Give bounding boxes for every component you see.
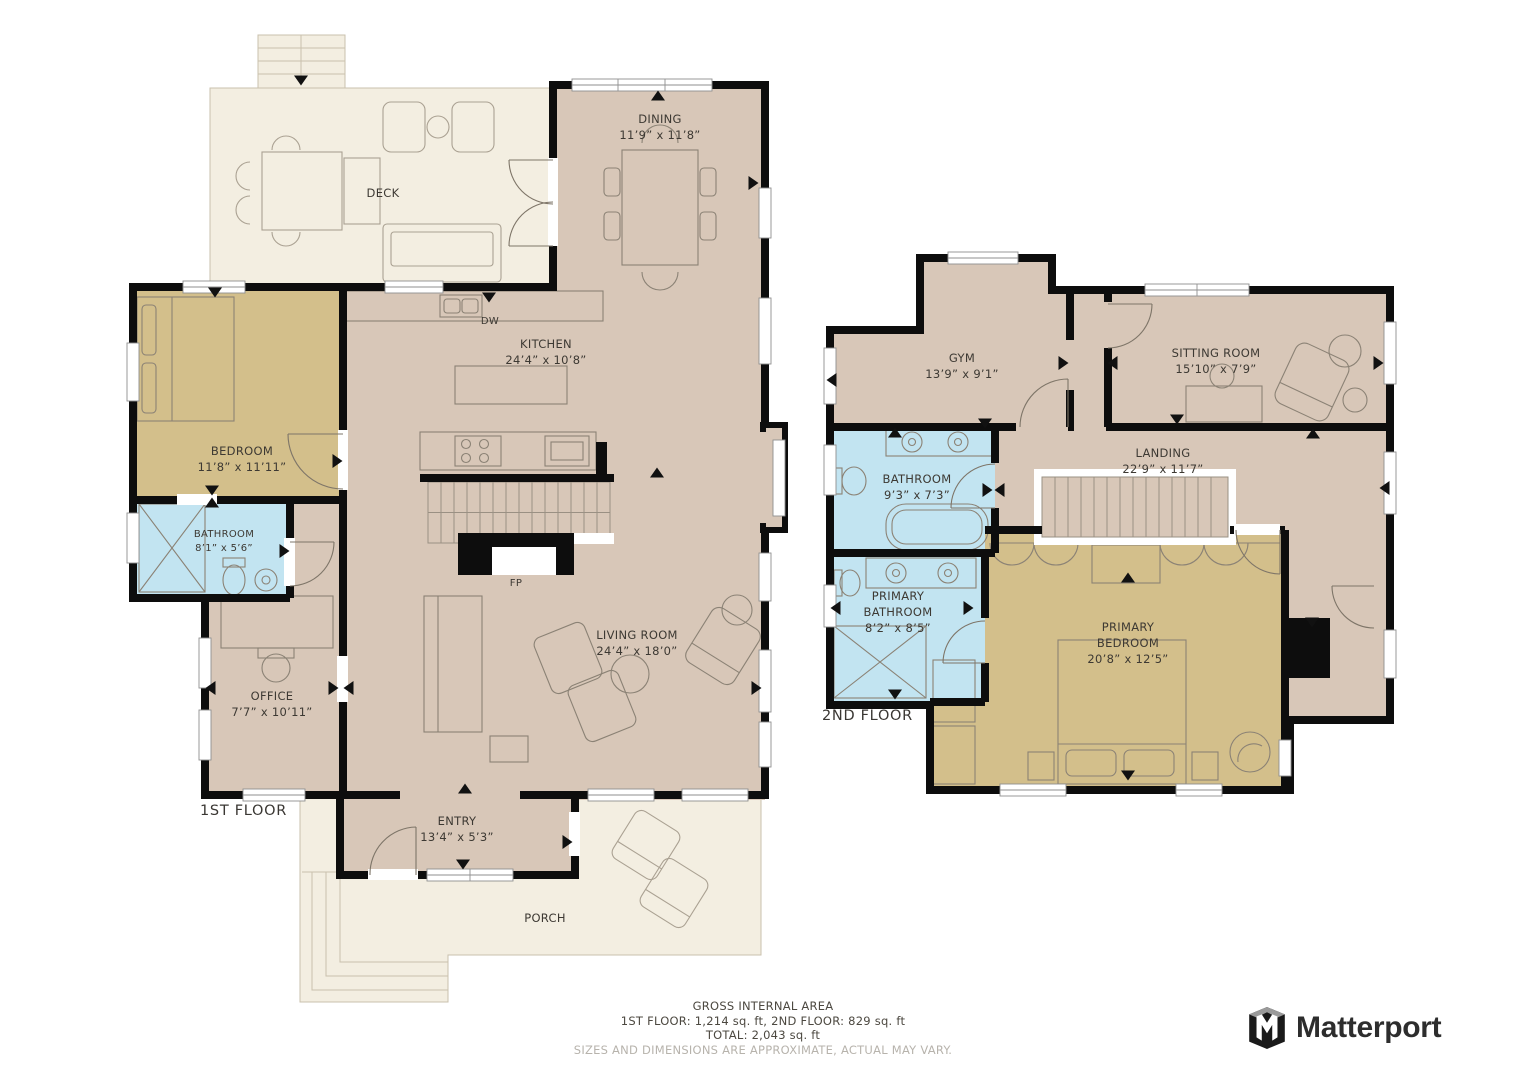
label-landing: LANDING22’9” x 11’7”: [1122, 445, 1203, 477]
kitchen-wall-stub: [596, 442, 607, 478]
label-bathroom2: BATHROOM9’3” x 7’3”: [883, 471, 952, 503]
label-office: OFFICE7’7” x 10’11”: [231, 688, 312, 720]
label-primary-bathroom: PRIMARY BATHROOM8’2” x 8’5”: [850, 588, 946, 636]
matterport-icon: [1247, 1006, 1287, 1050]
label-living-room: LIVING ROOM24’4” x 18’0”: [596, 627, 678, 659]
fireplace-hearth: [492, 547, 556, 575]
floor1-title: 1ST FLOOR: [200, 803, 287, 819]
label-porch: PORCH: [524, 910, 566, 926]
label-fireplace: FP: [510, 577, 522, 591]
label-dining: DINING11’9” x 11’8”: [619, 111, 700, 143]
closet-black: [1285, 618, 1330, 678]
area-disclaimer: SIZES AND DIMENSIONS ARE APPROXIMATE, AC…: [463, 1043, 1063, 1058]
label-primary-bedroom: PRIMARY BEDROOM20’8” x 12’5”: [1073, 619, 1183, 667]
label-bathroom1: BATHROOM8’1” x 5’6”: [194, 528, 254, 556]
label-entry: ENTRY13’4” x 5’3”: [420, 813, 494, 845]
stairs-floor2: [1034, 469, 1236, 545]
area-summary: GROSS INTERNAL AREA 1ST FLOOR: 1,214 sq.…: [463, 999, 1063, 1057]
area-summary-total: TOTAL: 2,043 sq. ft: [463, 1028, 1063, 1043]
label-deck: DECK: [367, 185, 400, 201]
label-gym: GYM13’9” x 9’1”: [925, 350, 999, 382]
area-summary-title: GROSS INTERNAL AREA: [463, 999, 1063, 1014]
label-sitting-room: SITTING ROOM15’10” x 7’9”: [1172, 345, 1261, 377]
matterport-wordmark: Matterport: [1296, 1011, 1441, 1045]
area-summary-floors: 1ST FLOOR: 1,214 sq. ft, 2ND FLOOR: 829 …: [463, 1014, 1063, 1029]
label-kitchen: KITCHEN24’4” x 10’8”: [505, 336, 586, 368]
floorplan-page: DECK DINING11’9” x 11’8” KITCHEN24’4” x …: [0, 0, 1527, 1080]
floor2-title: 2ND FLOOR: [822, 708, 913, 724]
matterport-logo: Matterport: [1247, 1006, 1441, 1050]
label-dishwasher: DW: [481, 315, 499, 329]
label-bedroom: BEDROOM11’8” x 11’11”: [198, 443, 287, 475]
